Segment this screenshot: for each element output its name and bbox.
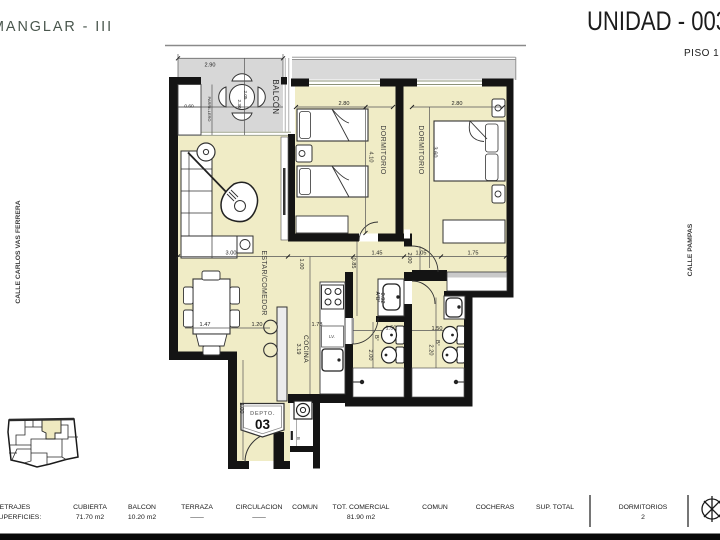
svg-text:BALCÓN: BALCÓN xyxy=(271,79,280,114)
svg-text:BALCON: BALCON xyxy=(128,504,156,511)
svg-text:3.00: 3.00 xyxy=(226,251,237,257)
svg-text:ESTAR/COMEDOR: ESTAR/COMEDOR xyxy=(260,250,267,315)
svg-text:0.85: 0.85 xyxy=(350,258,356,269)
svg-text:1.20: 1.20 xyxy=(252,322,263,328)
svg-text:1.47: 1.47 xyxy=(200,322,211,328)
svg-text:1.45: 1.45 xyxy=(372,251,383,257)
svg-text:3.60: 3.60 xyxy=(432,147,438,158)
svg-text:COCINA: COCINA xyxy=(302,335,309,363)
svg-text:TERRAZA: TERRAZA xyxy=(181,504,213,511)
svg-text:2.00: 2.00 xyxy=(238,403,244,414)
svg-text:SUP. TOTAL: SUP. TOTAL xyxy=(536,504,574,511)
svg-text:A°B°: A°B° xyxy=(374,292,380,303)
svg-text:DORMITORIO: DORMITORIO xyxy=(417,125,424,175)
svg-text:2: 2 xyxy=(641,514,645,521)
svg-text:——: —— xyxy=(252,514,266,521)
svg-text:1.00: 1.00 xyxy=(298,259,304,270)
svg-text:2.00: 2.00 xyxy=(406,253,412,264)
svg-text:CUBIERTA: CUBIERTA xyxy=(73,504,107,511)
svg-text:1.50: 1.50 xyxy=(432,326,443,332)
svg-text:COCHERAS: COCHERAS xyxy=(476,504,515,511)
svg-text:MANGLAR - III: MANGLAR - III xyxy=(0,18,113,35)
svg-text:2.80: 2.80 xyxy=(339,101,350,107)
svg-text:B: B xyxy=(296,437,301,440)
svg-text:DORMITORIO: DORMITORIO xyxy=(379,125,386,175)
svg-text:PISO 1: PISO 1 xyxy=(684,48,719,59)
svg-text:71.70 m2: 71.70 m2 xyxy=(76,514,105,521)
svg-text:10.20 m2: 10.20 m2 xyxy=(128,514,157,521)
svg-text:03: 03 xyxy=(255,417,271,432)
svg-text:3.19: 3.19 xyxy=(295,344,301,355)
svg-text:B°: B° xyxy=(434,340,440,346)
svg-text:2.00: 2.00 xyxy=(367,350,373,361)
svg-text:CALLE CARLOS VAS FERRERA: CALLE CARLOS VAS FERRERA xyxy=(15,200,22,303)
svg-text:1.50: 1.50 xyxy=(386,326,397,332)
svg-text:2.90: 2.90 xyxy=(205,63,216,69)
svg-text:CALLE PAMPAS: CALLE PAMPAS xyxy=(687,223,694,276)
svg-text:0.60: 0.60 xyxy=(184,104,194,110)
svg-text:1.78: 1.78 xyxy=(312,322,323,328)
svg-text:2.05: 2.05 xyxy=(243,91,248,100)
svg-text:2.80: 2.80 xyxy=(452,101,463,107)
svg-text:CIRCULACION: CIRCULACION xyxy=(236,504,283,511)
svg-text:1.05: 1.05 xyxy=(416,251,427,257)
svg-text:UNIDAD - 003: UNIDAD - 003 xyxy=(587,6,720,36)
svg-text:LV.: LV. xyxy=(329,334,335,339)
svg-text:4.10: 4.10 xyxy=(368,152,374,163)
svg-text:COMUN: COMUN xyxy=(422,504,448,511)
svg-text:COMUN: COMUN xyxy=(292,504,318,511)
svg-text:1.75: 1.75 xyxy=(468,251,479,257)
svg-text:TOT. COMERCIAL: TOT. COMERCIAL xyxy=(333,504,390,511)
svg-text:——: —— xyxy=(190,514,204,521)
svg-text:DORMITORIOS: DORMITORIOS xyxy=(619,504,668,511)
svg-text:81.90 m2: 81.90 m2 xyxy=(347,514,376,521)
svg-text:2.20: 2.20 xyxy=(428,345,434,356)
svg-text:2.30: 2.30 xyxy=(237,100,242,109)
svg-text:PARRILLERO: PARRILLERO xyxy=(207,96,212,121)
svg-text:METRAJES: METRAJES xyxy=(0,504,31,511)
svg-text:SUPERFICIES:: SUPERFICIES: xyxy=(0,514,41,521)
svg-text:B°: B° xyxy=(373,335,379,341)
